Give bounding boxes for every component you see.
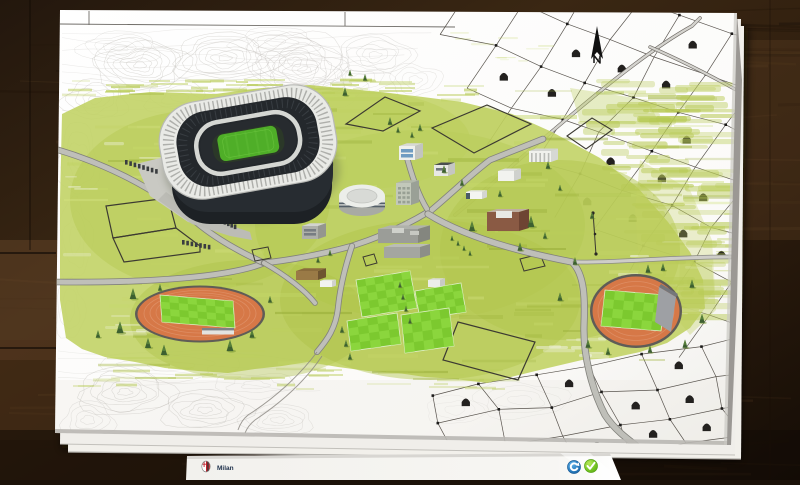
svg-text:Milan: Milan	[217, 465, 234, 472]
